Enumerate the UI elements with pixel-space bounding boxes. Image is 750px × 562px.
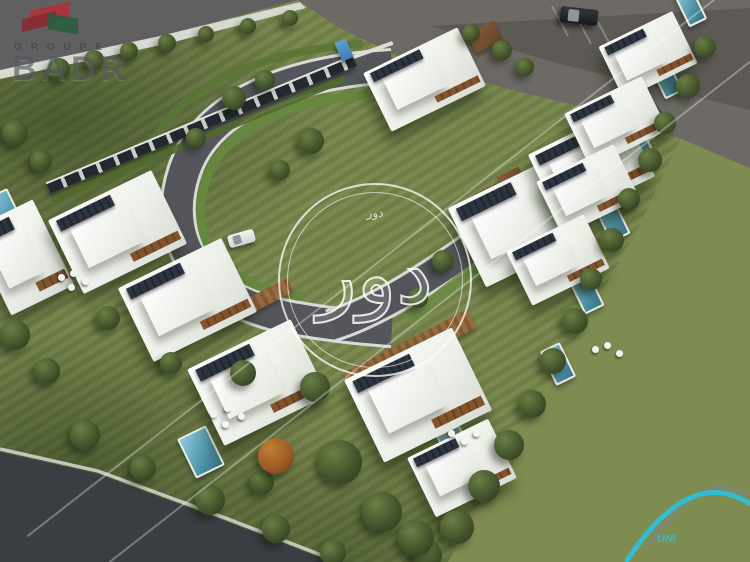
tree (580, 268, 602, 290)
tree (638, 148, 662, 172)
tree (540, 348, 566, 374)
tree (160, 352, 182, 374)
tree (34, 358, 60, 384)
tree (270, 160, 290, 180)
tree (186, 128, 206, 148)
tree (516, 58, 534, 76)
tree (318, 440, 362, 484)
tree (2, 120, 28, 146)
tree (440, 510, 474, 544)
tree (362, 492, 402, 532)
tree (600, 228, 624, 252)
tree (0, 320, 30, 350)
tree (282, 10, 298, 26)
tree (222, 86, 246, 110)
aerial-render-scene: دور دور GROUPE BADR UNI (0, 0, 750, 562)
tree (518, 390, 546, 418)
tree (130, 455, 156, 481)
tree (298, 128, 324, 154)
groupe-badr-logo: GROUPE BADR (10, 4, 200, 99)
tree (240, 18, 256, 34)
tree (694, 36, 716, 58)
patio-furniture (58, 270, 98, 296)
tree (676, 74, 700, 98)
tree (398, 520, 434, 556)
tree (494, 430, 524, 460)
center-watermark-calligraphy: دور (280, 196, 470, 356)
car-windshield (232, 234, 242, 245)
tree (492, 40, 512, 60)
tree (300, 372, 330, 402)
autumn-tree (258, 438, 294, 474)
car-windshield (567, 9, 579, 21)
tree (30, 150, 52, 172)
tree (198, 26, 214, 42)
badr-building-icon (48, 13, 78, 34)
patio-furniture (448, 428, 488, 454)
tree (250, 470, 274, 494)
patio-furniture (208, 405, 254, 435)
tree (255, 70, 275, 90)
tree (96, 306, 120, 330)
tree (70, 420, 100, 450)
tree (618, 188, 640, 210)
badr-text: BADR (12, 50, 130, 89)
tree (468, 470, 500, 502)
tree (262, 515, 290, 543)
tree (562, 308, 588, 334)
tree (462, 24, 480, 42)
patio-furniture (592, 342, 632, 368)
tree (320, 540, 346, 562)
renderer-name-text: UNI (657, 533, 676, 545)
